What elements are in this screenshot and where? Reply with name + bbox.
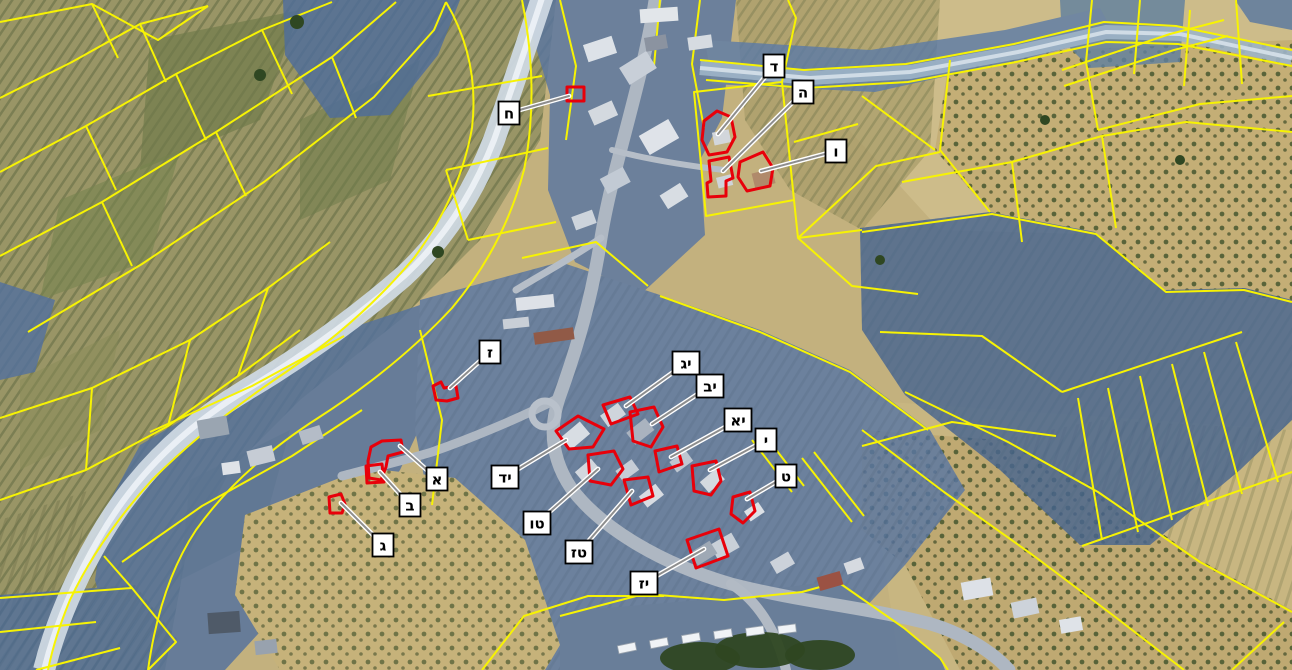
label-letter-tet: ט [781,468,791,486]
label-letter-het: ח [504,105,514,123]
label-letter-yod: י [764,432,768,450]
label-letter-tet-zayin: טז [571,544,587,562]
label-letter-tet-vav: טו [529,515,544,533]
label-letter-yod-bet: יב [703,378,717,396]
label-letter-alef: א [432,471,443,489]
label-letter-yod-zayin: יז [639,575,649,593]
map-canvas: אבגדהוזחטייאיביגידטוטזיז [0,0,1292,670]
label-letter-gimel: ג [380,537,387,555]
label-letter-he: ה [798,84,808,102]
label-letter-dalet: ד [770,58,779,76]
aerial-map: אבגדהוזחטייאיביגידטוטזיז [0,0,1292,670]
label-letter-vav: ו [833,143,838,161]
label-letter-zayin: ז [487,344,493,362]
label-letter-bet: ב [405,497,414,515]
label-letter-yod-gimel: יג [680,355,691,373]
label-letter-yod-alef: יא [730,412,745,430]
label-letter-yod-dalet: יד [498,469,511,487]
